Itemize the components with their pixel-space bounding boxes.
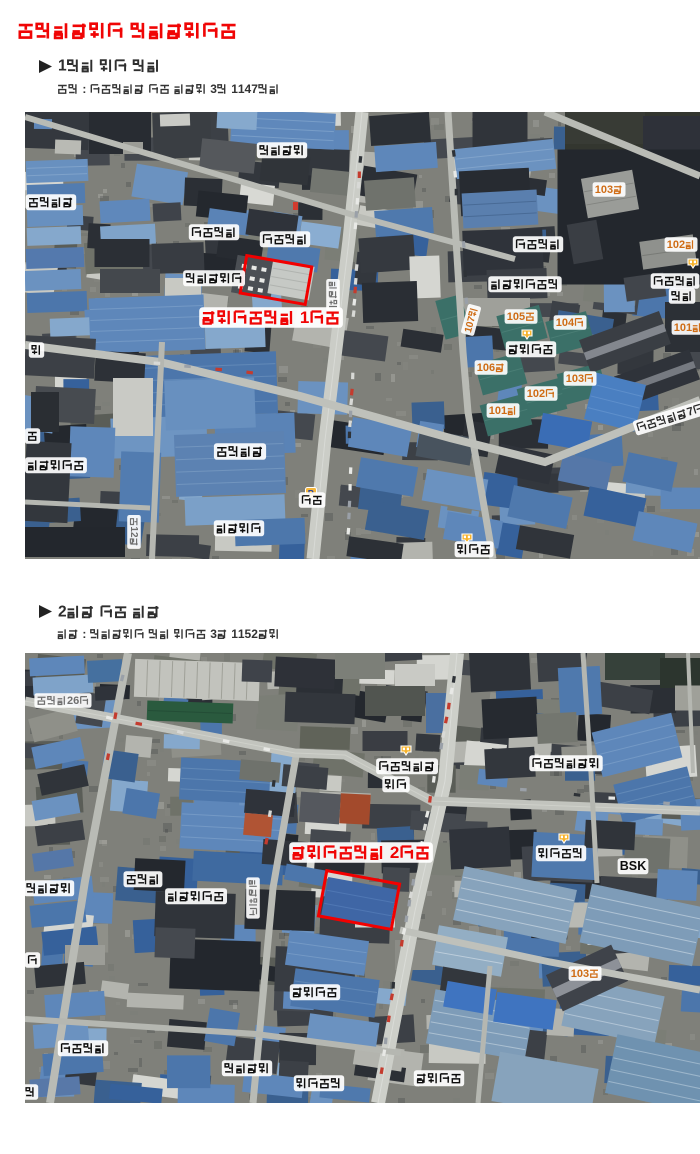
svg-text:4: 4 [568,317,575,329]
svg-text:1: 1 [58,58,67,75]
svg-text:K: K [637,859,646,873]
svg-text:1: 1 [686,322,692,334]
svg-text:6: 6 [73,695,79,707]
svg-text::: : [82,627,86,641]
svg-text:B: B [620,859,629,873]
svg-text:1: 1 [501,405,507,417]
svg-text:3: 3 [210,627,217,641]
svg-text:2: 2 [539,388,545,400]
svg-text:2: 2 [251,627,258,641]
svg-text::: : [82,82,86,96]
svg-text:2: 2 [58,604,67,621]
svg-text:1: 1 [300,308,309,327]
svg-text:6: 6 [489,362,495,374]
svg-text:2: 2 [128,532,139,538]
svg-text:2: 2 [390,843,399,862]
svg-text:5: 5 [519,311,525,323]
svg-text:3: 3 [583,968,589,980]
svg-text:2: 2 [679,239,685,251]
svg-text:3: 3 [210,82,217,96]
svg-text:3: 3 [607,184,613,196]
svg-text:7: 7 [251,82,258,96]
svg-text:3: 3 [578,373,584,385]
svg-text:S: S [629,859,637,873]
